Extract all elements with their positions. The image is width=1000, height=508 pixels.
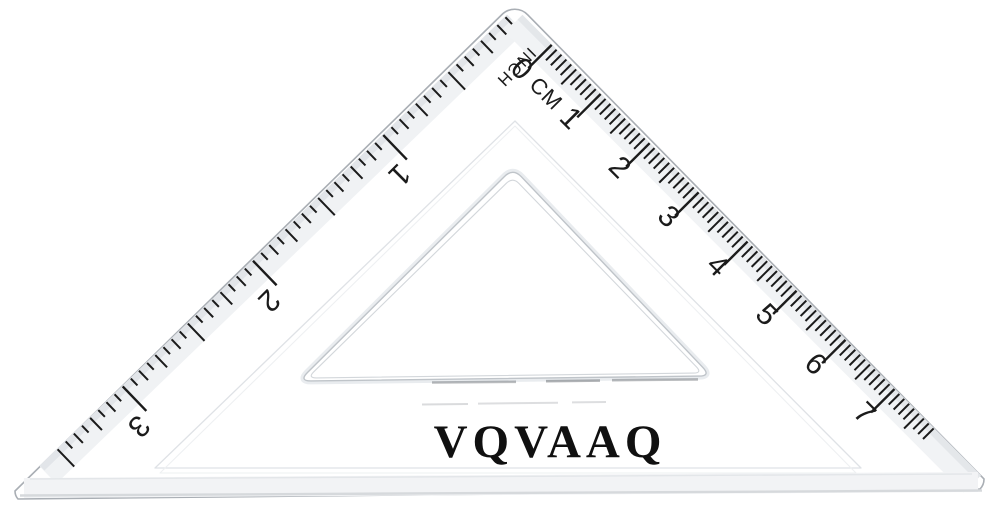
set-square-photo: 01234567CM 123INCH VQVAAQ — [0, 0, 1000, 508]
smudge-mark — [546, 381, 600, 382]
set-square: 01234567CM 123INCH VQVAAQ — [0, 0, 1000, 508]
smudge-mark — [478, 403, 558, 404]
smudge-mark — [432, 382, 516, 383]
brand-text: VQVAAQ — [434, 416, 667, 468]
smudge-mark — [422, 404, 468, 405]
smudge-mark — [612, 379, 698, 380]
bottom-edge-bevel — [24, 482, 978, 488]
